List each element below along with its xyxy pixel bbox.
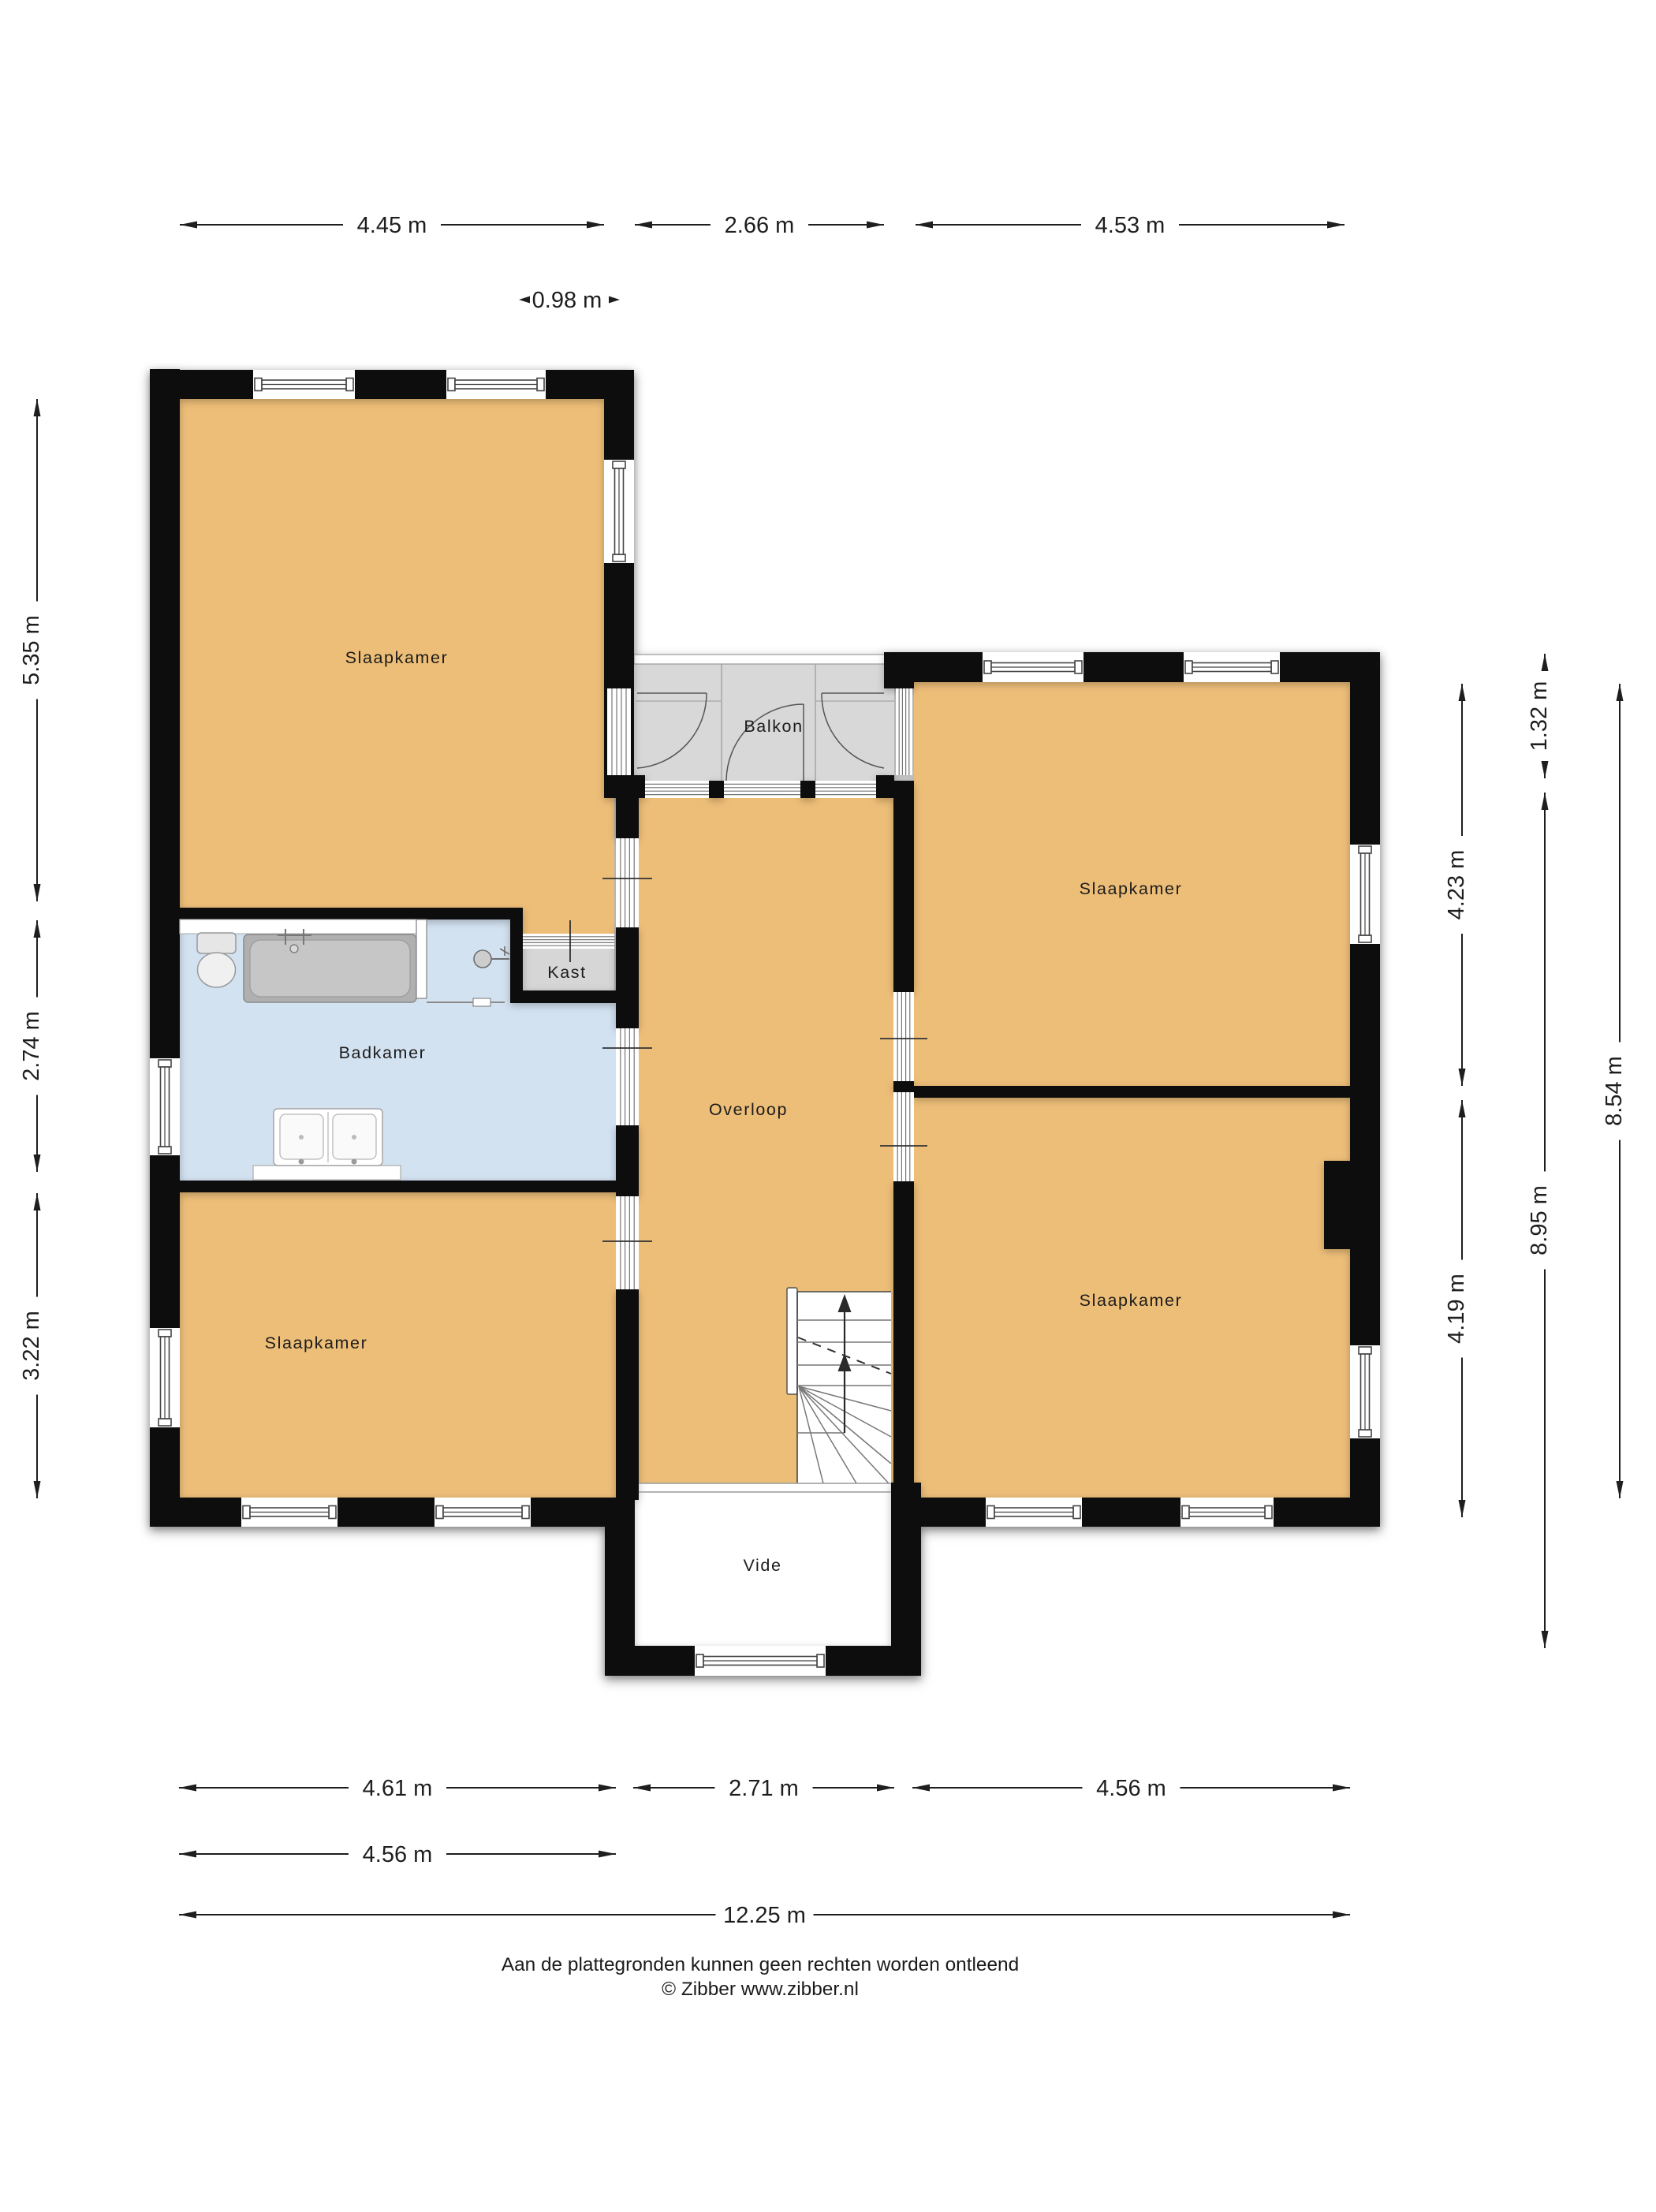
svg-text:Slaapkamer: Slaapkamer bbox=[345, 648, 449, 667]
svg-text:8.95 m: 8.95 m bbox=[1527, 1185, 1552, 1255]
svg-text:2.71 m: 2.71 m bbox=[729, 1776, 799, 1801]
svg-text:Balkon: Balkon bbox=[744, 717, 803, 736]
svg-text:Slaapkamer: Slaapkamer bbox=[1080, 1291, 1183, 1310]
svg-text:Slaapkamer: Slaapkamer bbox=[1080, 879, 1183, 898]
svg-text:Overloop: Overloop bbox=[709, 1100, 788, 1119]
svg-text:3.22 m: 3.22 m bbox=[19, 1311, 44, 1381]
svg-text:0.98 m: 0.98 m bbox=[532, 288, 602, 313]
svg-text:© Zibber www.zibber.nl: © Zibber www.zibber.nl bbox=[662, 1979, 859, 2000]
svg-text:1.32 m: 1.32 m bbox=[1527, 681, 1552, 752]
svg-text:4.45 m: 4.45 m bbox=[357, 213, 427, 238]
svg-text:4.56 m: 4.56 m bbox=[1096, 1776, 1166, 1801]
svg-text:8.54 m: 8.54 m bbox=[1602, 1056, 1627, 1126]
svg-text:4.56 m: 4.56 m bbox=[363, 1842, 433, 1867]
svg-text:5.35 m: 5.35 m bbox=[19, 615, 44, 685]
svg-text:12.25 m: 12.25 m bbox=[723, 1903, 806, 1928]
svg-text:Badkamer: Badkamer bbox=[339, 1043, 427, 1062]
svg-text:2.74 m: 2.74 m bbox=[19, 1011, 44, 1081]
svg-text:4.23 m: 4.23 m bbox=[1444, 850, 1469, 920]
svg-text:4.53 m: 4.53 m bbox=[1095, 213, 1166, 238]
svg-text:Slaapkamer: Slaapkamer bbox=[265, 1334, 368, 1352]
svg-text:Kast: Kast bbox=[547, 963, 586, 982]
svg-text:2.66 m: 2.66 m bbox=[725, 213, 795, 238]
svg-text:Vide: Vide bbox=[743, 1556, 781, 1575]
svg-text:4.61 m: 4.61 m bbox=[363, 1776, 433, 1801]
svg-text:4.19 m: 4.19 m bbox=[1444, 1274, 1469, 1344]
svg-text:Aan de plattegronden kunnen ge: Aan de plattegronden kunnen geen rechten… bbox=[502, 1954, 1019, 1975]
